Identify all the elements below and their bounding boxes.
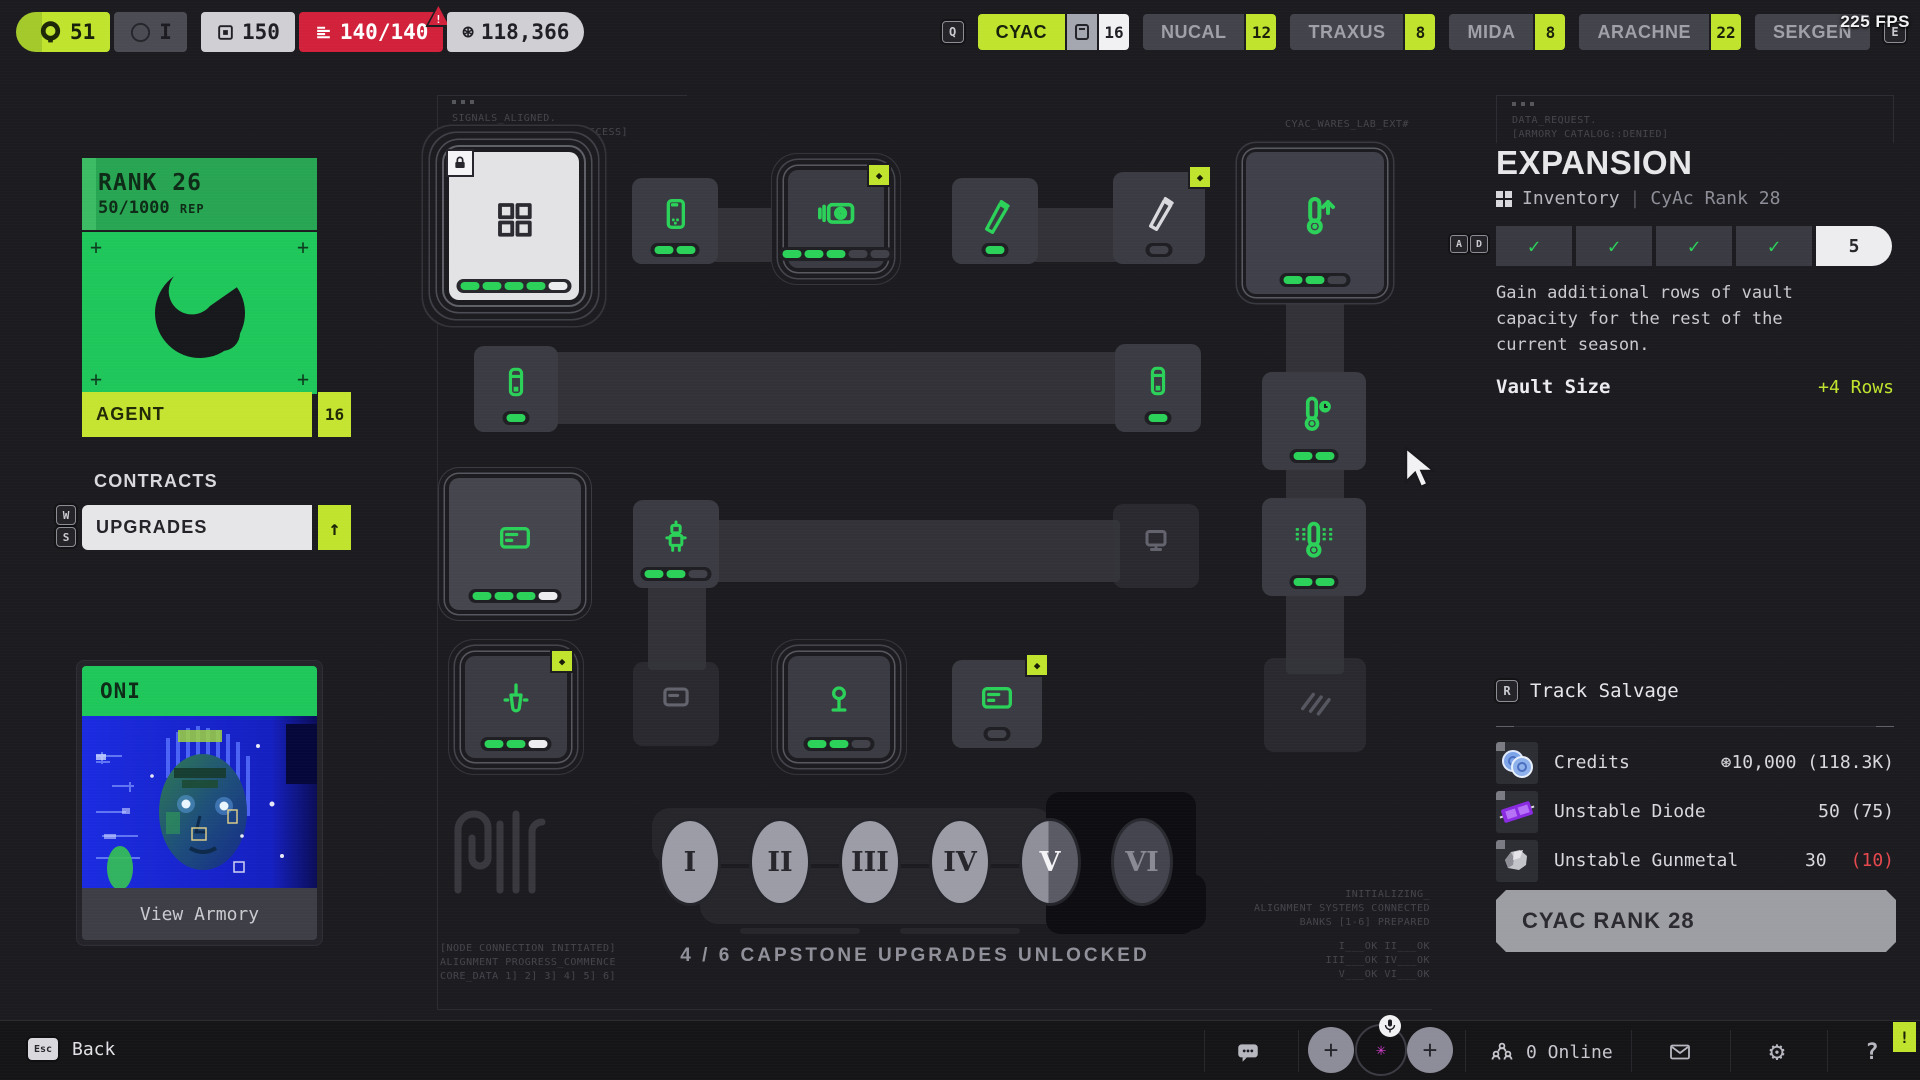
tree-annotation-status: I___OK II___OKIII___OK IV___OKV___OK VI_…	[1250, 940, 1430, 982]
annotation-line: [ARMORY CATALOG::DENIED]	[1512, 128, 1669, 142]
progress-segment	[830, 740, 849, 748]
progress-segment	[852, 740, 871, 748]
annotation-line: III___OK IV___OK	[1250, 954, 1430, 968]
progress-segment	[485, 740, 504, 748]
beacon-upgrade[interactable]	[788, 656, 890, 758]
progress-segment	[473, 592, 492, 600]
node-progress	[984, 727, 1011, 741]
annotation-line: ALIGNMENT SYSTEMS CONNECTED	[1190, 902, 1430, 916]
tree-annotation-bottom-right: INITIALIZING_ALIGNMENT SYSTEMS CONNECTED…	[1190, 888, 1430, 930]
thermo-up-icon	[1246, 152, 1384, 280]
thermo-waves-icon	[1262, 498, 1366, 582]
progress-segment	[1284, 276, 1303, 284]
diode-icon	[1496, 791, 1538, 833]
back-button[interactable]: Esc Back	[28, 1038, 115, 1060]
progress-segment	[483, 282, 502, 290]
capstone-status: 4 / 6 CAPSTONE UPGRADES UNLOCKED	[680, 945, 1149, 967]
tier-complete-segment: ✓	[1576, 226, 1652, 266]
progress-segment	[495, 592, 514, 600]
settings-button[interactable]: ⚙	[1757, 1032, 1797, 1072]
card2-icon	[633, 662, 719, 732]
breadcrumb-primary: Inventory	[1522, 188, 1620, 209]
node-progress	[779, 247, 894, 261]
envelope-icon	[1668, 1040, 1692, 1064]
frame-line	[437, 1009, 1432, 1010]
coins-icon	[1496, 742, 1538, 784]
bottom-bar	[0, 1020, 1920, 1080]
annotation-line: [RUNNER RESONANCE::SUCCESS]	[452, 126, 628, 140]
progress-segment	[689, 570, 708, 578]
capstone-II: II	[749, 818, 811, 906]
key-hint-esc: Esc	[28, 1038, 58, 1060]
upgrade-description: Gain additional rows of vault capacity f…	[1496, 280, 1816, 358]
chat-bubble-icon	[1235, 1039, 1261, 1065]
progress-segment	[645, 570, 664, 578]
pen-icon	[952, 178, 1038, 250]
progress-segment	[808, 740, 827, 748]
progress-segment	[986, 246, 1005, 254]
connection-band	[712, 520, 1120, 582]
divider	[1496, 726, 1894, 727]
salvage-value: ⊛10,000 (118.3K)	[1721, 752, 1894, 773]
salvage-name: Unstable Diode	[1554, 801, 1802, 822]
tree-annotation-bottom-left: [NODE CONNECTION INITIATED]ALIGNMENT PRO…	[440, 942, 616, 984]
thermal-timer-upgrade[interactable]	[1262, 372, 1366, 470]
progress-segment	[549, 282, 568, 290]
mic-icon	[1379, 1015, 1401, 1037]
upgrade-badge-icon: ◆	[1188, 165, 1212, 189]
stat-label: Vault Size	[1496, 376, 1610, 398]
node-progress	[1146, 243, 1173, 257]
annotation-line: [NODE CONNECTION INITIATED]	[440, 942, 616, 956]
progress-segment	[527, 282, 546, 290]
check-icon: ✓	[1608, 234, 1620, 258]
divider	[1204, 1030, 1205, 1072]
progress-segment	[871, 250, 890, 258]
progress-segment	[827, 250, 846, 258]
device-upgrade[interactable]	[632, 178, 718, 264]
progress-segment	[988, 730, 1007, 738]
progress-segment	[1316, 452, 1335, 460]
salvage-alert-value: (10)	[1851, 850, 1894, 871]
capstone-I: I	[659, 818, 721, 906]
tier-key-hints: A D	[1450, 235, 1488, 253]
diagonal-icon	[1264, 658, 1366, 738]
tube-icon	[474, 346, 558, 418]
relay-upgrade[interactable]	[633, 662, 719, 746]
help-button[interactable]: ?	[1852, 1032, 1892, 1072]
cyac-rank-button[interactable]: CYAC RANK 28	[1496, 890, 1896, 952]
annotation-line: ALIGNMENT PROGRESS_COMMENCE	[440, 956, 616, 970]
salvage-value: 30	[1805, 850, 1827, 871]
tube-icon	[1115, 344, 1201, 418]
annotation-line: SIGNALS_ALIGNED.	[452, 112, 628, 126]
node-progress	[982, 243, 1009, 257]
annotation-line: DATA_REQUEST.	[1512, 114, 1669, 128]
locked-upgrade[interactable]	[1264, 658, 1366, 752]
track-salvage-toggle[interactable]: R Track Salvage	[1496, 680, 1679, 702]
progress-segment	[517, 592, 536, 600]
thermal-vent-upgrade[interactable]	[1262, 498, 1366, 596]
upgrade-badge-icon: ◆	[1025, 653, 1049, 677]
question-icon: ?	[1865, 1040, 1878, 1065]
vial-upgrade[interactable]	[474, 346, 558, 432]
progress-segment	[1294, 452, 1313, 460]
upgrade-title: EXPANSION	[1496, 144, 1692, 182]
lock-icon	[446, 149, 474, 177]
salvage-list: Credits⊛10,000 (118.3K)Unstable Diode50 …	[1496, 738, 1894, 885]
progress-segment	[461, 282, 480, 290]
monitor-icon	[1113, 504, 1199, 574]
salvage-row: Unstable Diode50 (75)	[1496, 787, 1894, 836]
tree-annotation-top-left: SIGNALS_ALIGNED.[RUNNER RESONANCE::SUCCE…	[452, 112, 628, 140]
thermo-clock-icon	[1262, 372, 1366, 456]
back-label: Back	[72, 1039, 115, 1060]
node-progress	[469, 589, 562, 603]
track-salvage-label: Track Salvage	[1530, 680, 1679, 702]
divider	[1631, 1030, 1632, 1072]
phone-icon	[632, 178, 718, 250]
check-icon: ✓	[1688, 234, 1700, 258]
breadcrumb-divider: |	[1630, 188, 1641, 209]
lamp-icon	[788, 656, 890, 744]
mouse-cursor	[1402, 446, 1438, 492]
divider	[1298, 1030, 1299, 1072]
tier-progress: ✓✓✓✓5	[1496, 226, 1892, 266]
salvage-row: Unstable Gunmetal30(10)	[1496, 836, 1894, 885]
progress-segment	[505, 282, 524, 290]
detail-panel: DATA_REQUEST.[ARMORY CATALOG::DENIED] EX…	[1496, 0, 1900, 1080]
players-icon	[1490, 1040, 1514, 1064]
chat-button[interactable]	[1228, 1032, 1268, 1072]
tier-current-segment: 5	[1816, 226, 1892, 266]
progress-segment	[1294, 578, 1313, 586]
progress-segment	[507, 414, 526, 422]
progress-segment	[1149, 414, 1168, 422]
dropper-upgrade[interactable]: ◆	[465, 656, 567, 758]
tree-annotation-top-right: CYAC_WARES_LAB_EXT#	[1285, 118, 1409, 132]
decor-dots	[452, 100, 474, 104]
node-progress	[457, 279, 572, 293]
vault-size-stat: Vault Size +4 Rows	[1496, 376, 1894, 398]
screen: 51 I 150 140/140 ! ⊛ 118,366 Q CYAC16NU	[0, 0, 1920, 1080]
breadcrumb-secondary: CyAc Rank 28	[1650, 188, 1780, 209]
monitor-upgrade[interactable]	[1113, 504, 1199, 588]
progress-segment	[529, 740, 548, 748]
fps-counter: 225 FPS	[1840, 12, 1910, 32]
node-progress	[1290, 575, 1339, 589]
capstone-IV: IV	[929, 818, 991, 906]
stat-value: +4 Rows	[1818, 377, 1894, 398]
progress-segment	[783, 250, 802, 258]
node-progress	[503, 411, 530, 425]
injector-upgrade[interactable]	[952, 178, 1038, 264]
salvage-name: Credits	[1554, 752, 1705, 773]
mail-button[interactable]	[1660, 1032, 1700, 1072]
connection-band	[1032, 208, 1120, 262]
node-progress	[804, 737, 875, 751]
capstone-VI: VI	[1111, 818, 1173, 906]
key-hint-a: A	[1450, 235, 1468, 253]
decor-dots	[1512, 102, 1534, 106]
salvage-name: Unstable Gunmetal	[1554, 850, 1789, 871]
thermal-boost-upgrade[interactable]	[1246, 152, 1384, 294]
progress-segment	[1306, 276, 1325, 284]
progress-segment	[1328, 276, 1347, 284]
divider	[1827, 1030, 1828, 1072]
injector-upgrade-2[interactable]: ◆	[1113, 172, 1205, 264]
annotation-line: BANKS [1-6] PREPARED	[1190, 916, 1430, 930]
add-player-left-button[interactable]: +	[1308, 1027, 1354, 1073]
drone-upgrade[interactable]	[633, 500, 719, 588]
salvage-row: Credits⊛10,000 (118.3K)	[1496, 738, 1894, 787]
maze-glyph	[448, 802, 552, 902]
connection-band	[552, 352, 1122, 424]
tier-complete-segment: ✓	[1736, 226, 1812, 266]
progress-segment	[507, 740, 526, 748]
divider	[1730, 1030, 1731, 1072]
tier-complete-segment: ✓	[1656, 226, 1732, 266]
gear-icon: ⚙	[1769, 1037, 1785, 1067]
progress-segment	[677, 246, 696, 254]
progress-segment	[655, 246, 674, 254]
online-status[interactable]: 0 Online	[1490, 1040, 1613, 1064]
inventory-grid-icon	[1496, 191, 1512, 207]
online-count: 0 Online	[1526, 1042, 1613, 1063]
node-progress	[1290, 449, 1339, 463]
panel-annotation: DATA_REQUEST.[ARMORY CATALOG::DENIED]	[1512, 114, 1669, 142]
console-upgrade[interactable]: ◆	[952, 660, 1042, 748]
key-hint-r: R	[1496, 680, 1518, 702]
check-icon: ✓	[1528, 234, 1540, 258]
annotation-line: I___OK II___OK	[1250, 940, 1430, 954]
robot-icon	[633, 500, 719, 574]
progress-segment	[539, 592, 558, 600]
vault-card-upgrade[interactable]	[449, 478, 581, 610]
capstone-III: III	[839, 818, 901, 906]
gunmetal-icon	[1496, 840, 1538, 882]
node-progress	[641, 567, 712, 581]
divider	[1465, 1030, 1466, 1072]
add-player-right-button[interactable]: +	[1407, 1027, 1453, 1073]
progress-segment	[1150, 246, 1169, 254]
vial-upgrade-2[interactable]	[1115, 344, 1201, 432]
breadcrumb: Inventory | CyAc Rank 28	[1496, 188, 1780, 209]
optics-upgrade[interactable]: ◆	[788, 170, 884, 268]
capstone-track	[740, 928, 860, 934]
progress-segment	[1316, 578, 1335, 586]
notification-badge[interactable]: !	[1893, 1022, 1916, 1052]
node-progress	[1280, 273, 1351, 287]
frame-line	[437, 155, 438, 1010]
annotation-line: CORE_DATA 1] 2] 3] 4] 5] 6]	[440, 970, 616, 984]
card-icon	[449, 478, 581, 596]
capstone-track	[900, 928, 1020, 934]
capstone-V: V	[1019, 818, 1081, 906]
annotation-line: V___OK VI___OK	[1250, 968, 1430, 982]
upgrade-badge-icon: ◆	[867, 163, 891, 187]
progress-segment	[849, 250, 868, 258]
progress-segment	[667, 570, 686, 578]
upgrade-badge-icon: ◆	[550, 649, 574, 673]
node-progress	[481, 737, 552, 751]
key-hint-d: D	[1470, 235, 1488, 253]
salvage-value: 50 (75)	[1818, 801, 1894, 822]
connection-band	[1286, 290, 1344, 674]
vault-grid-upgrade[interactable]	[449, 152, 579, 300]
node-progress	[1145, 411, 1172, 425]
progress-segment	[805, 250, 824, 258]
tier-complete-segment: ✓	[1496, 226, 1572, 266]
annotation-line: INITIALIZING_	[1190, 888, 1430, 902]
node-progress	[651, 243, 700, 257]
check-icon: ✓	[1768, 234, 1780, 258]
